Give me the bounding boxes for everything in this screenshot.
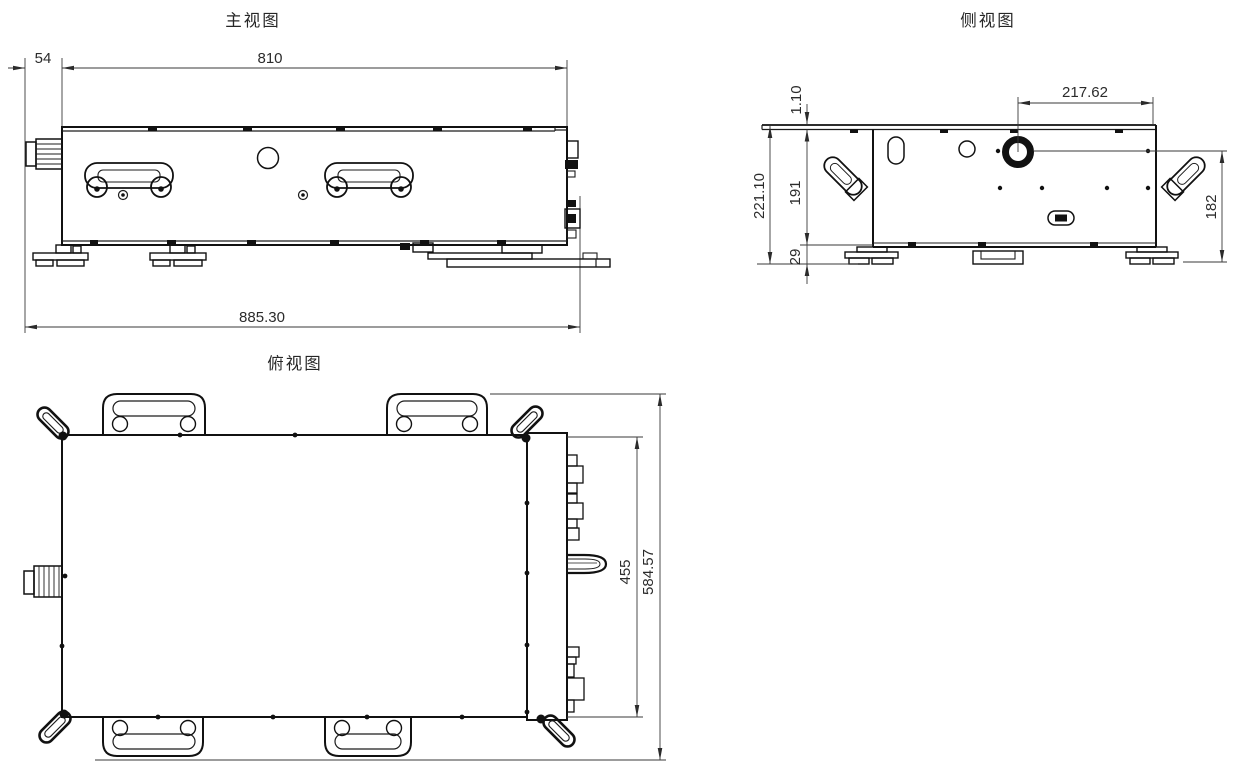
top-body-outline — [62, 433, 567, 720]
dim-side-lid-thickness: 1.10 — [788, 85, 805, 114]
side-port-connector — [1048, 211, 1074, 225]
side-oval-slot — [888, 137, 904, 164]
dim-top-body-depth: 455 — [617, 559, 634, 584]
top-right-blade — [567, 555, 606, 573]
side-small-hole — [959, 141, 975, 157]
top-corner-handle-br — [537, 713, 578, 750]
side-handle-left — [820, 153, 867, 200]
engineering-drawing-sheet: 主视图 54 810 885.30 — [0, 0, 1239, 768]
top-corner-handle-tl — [35, 405, 72, 442]
dim-top-total-depth: 584.57 — [640, 549, 657, 595]
dim-side-aperture-height: 182 — [1203, 194, 1220, 219]
top-screw-dots — [60, 433, 530, 720]
side-screw-dots — [996, 149, 1150, 190]
top-handle-b — [387, 394, 487, 435]
dim-front-left-offset: 54 — [35, 50, 52, 67]
front-view: 主视图 54 810 885.30 — [8, 11, 610, 333]
top-right-connectors — [567, 455, 584, 712]
dim-side-total-height: 221.10 — [751, 173, 768, 219]
top-corner-handle-tr — [509, 404, 546, 443]
top-handle-d — [325, 717, 411, 756]
dim-side-body-height: 191 — [787, 180, 804, 205]
dim-front-total-width: 885.30 — [239, 309, 285, 326]
technical-drawing-canvas: 主视图 54 810 885.30 — [0, 0, 1239, 768]
top-fiber-connector — [24, 566, 67, 597]
front-feet — [33, 243, 610, 267]
side-handle-right — [1162, 153, 1209, 200]
dim-front-body-width: 810 — [257, 50, 282, 67]
side-feet — [845, 247, 1178, 264]
front-handle-left — [85, 163, 173, 197]
side-view-title: 侧视图 — [960, 11, 1016, 30]
side-lid — [762, 125, 1156, 133]
front-lid-clips — [90, 126, 532, 245]
top-handle-c — [103, 717, 203, 756]
front-body-outline — [62, 126, 567, 245]
front-panel-hole — [258, 148, 279, 169]
top-view-title: 俯视图 — [267, 354, 323, 373]
top-view: 俯视图 — [24, 354, 666, 760]
top-dimension-lines: 455 584.57 — [95, 394, 666, 760]
side-view: 侧视图 — [751, 11, 1227, 284]
front-view-title: 主视图 — [225, 11, 281, 30]
dim-side-foot-height: 29 — [787, 249, 804, 266]
front-fiber-connector — [26, 139, 62, 169]
top-handle-a — [103, 394, 205, 435]
top-corner-handle-bl — [37, 709, 74, 746]
dim-side-aperture-offset: 217.62 — [1062, 84, 1108, 101]
front-dimension-lines: 54 810 885.30 — [8, 50, 580, 333]
front-panel-screws — [119, 191, 308, 200]
front-handle-right — [325, 163, 413, 197]
